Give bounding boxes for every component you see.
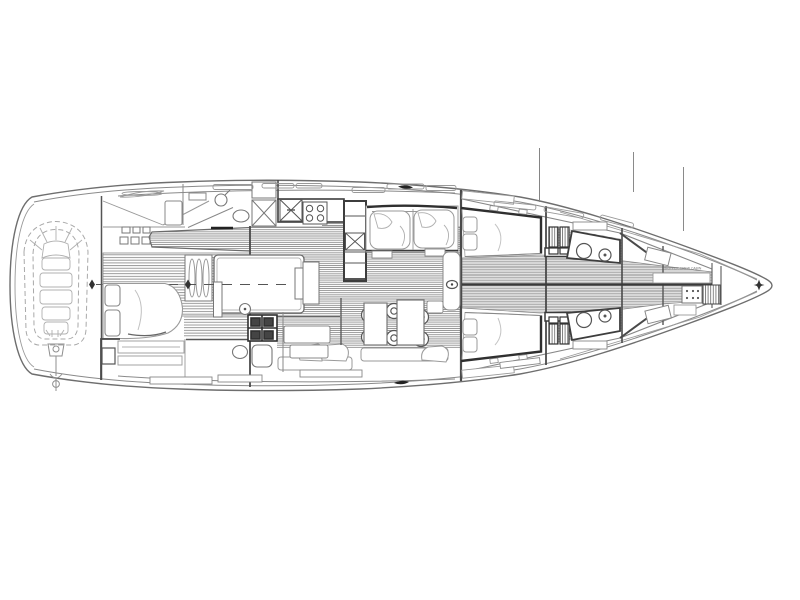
svg-text:SKIPPER CREW CABIN: SKIPPER CREW CABIN [664, 267, 702, 271]
